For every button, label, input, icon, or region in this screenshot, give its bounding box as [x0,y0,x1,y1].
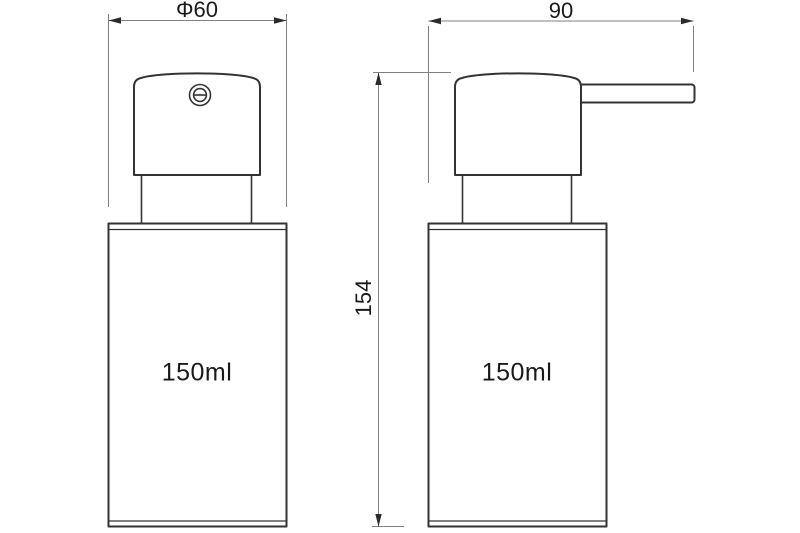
front-view [109,73,287,526]
side-pump-spout [573,85,695,103]
height-arrow-bottom [375,514,381,527]
front-volume-label: 150ml [162,361,233,386]
side-volume-label: 150ml [482,361,553,386]
drawing-svg [0,0,800,533]
diameter-arrow-left [109,17,122,23]
side-pump-head [455,73,581,175]
width-arrow-right [681,18,694,24]
side-view [429,73,695,526]
width-arrow-left [429,18,442,24]
diameter-arrow-right [274,17,287,23]
height-arrow-top [375,73,381,86]
technical-drawing-canvas: Φ60 90 154 150ml 150ml [0,0,800,533]
height-dimension-label: 154 [353,280,375,317]
width-dimension-label: 90 [549,0,573,22]
diameter-dimension-label: Φ60 [176,0,218,21]
